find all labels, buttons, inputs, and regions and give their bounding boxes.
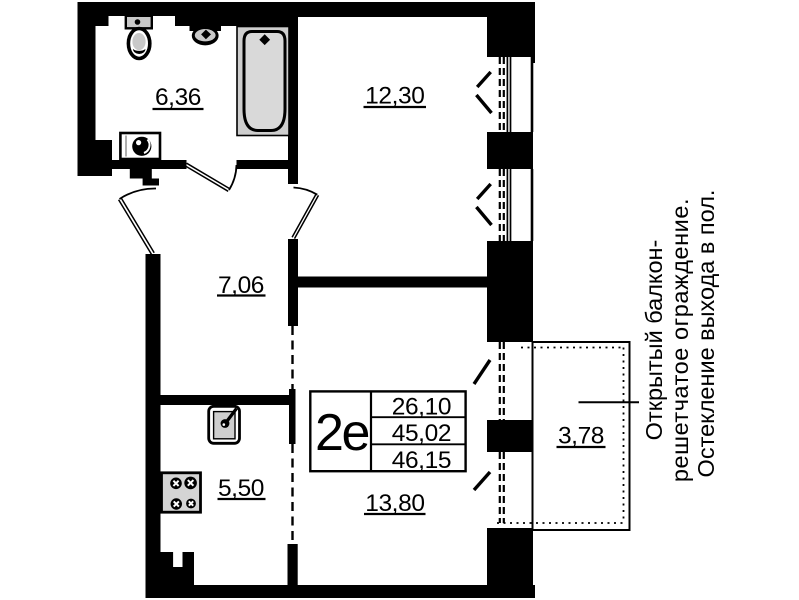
svg-text:Открытый балкон-: Открытый балкон- xyxy=(641,240,667,441)
svg-text:45,02: 45,02 xyxy=(392,420,451,447)
svg-text:6,36: 6,36 xyxy=(155,84,201,111)
svg-text:Остекление выхода в пол.: Остекление выхода в пол. xyxy=(693,190,719,478)
svg-text:26,10: 26,10 xyxy=(392,394,451,421)
svg-text:12,30: 12,30 xyxy=(365,83,424,110)
svg-text:3,78: 3,78 xyxy=(558,423,604,450)
svg-text:46,15: 46,15 xyxy=(392,447,451,474)
svg-text:2е: 2е xyxy=(315,404,369,462)
svg-text:решетчатое ограждение.: решетчатое ограждение. xyxy=(667,198,693,482)
